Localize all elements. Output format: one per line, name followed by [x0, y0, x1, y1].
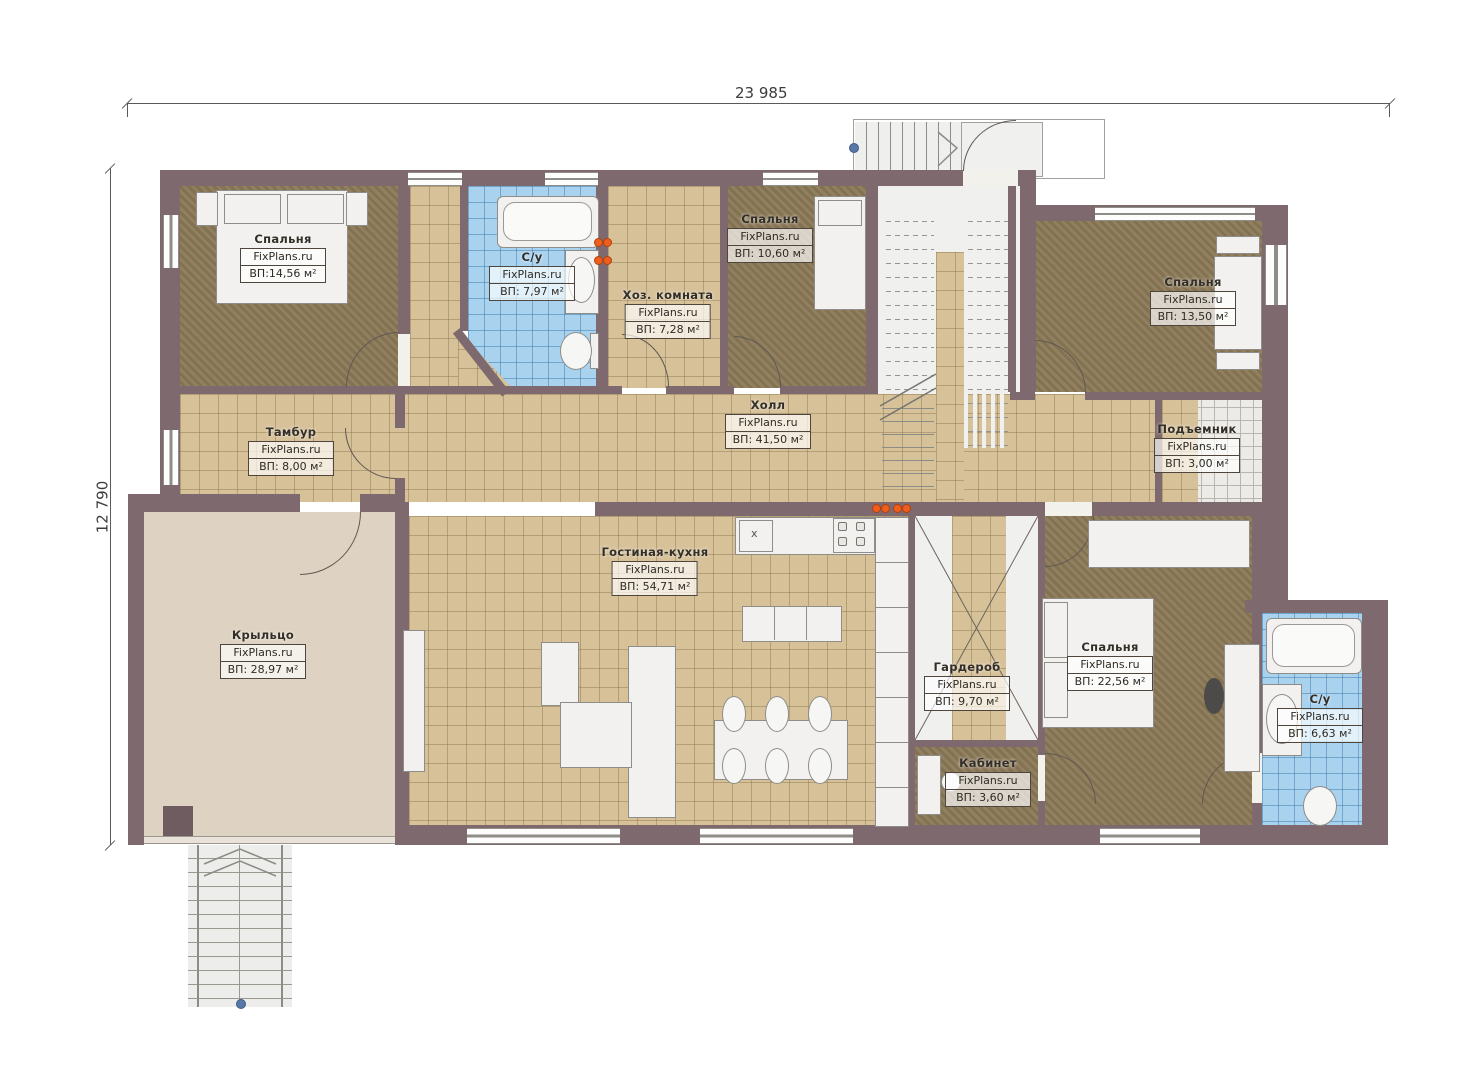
watermark: FixPlans.ru [241, 249, 325, 266]
sofa-chaise [560, 702, 632, 768]
room-label-vestibule: Тамбур FixPlans.ru ВП: 8,00 м² [248, 425, 334, 476]
toilet-1-bowl [560, 332, 592, 370]
toilet-2-bowl [1303, 786, 1337, 826]
dining-chair [722, 696, 746, 732]
railing-post-marker [849, 143, 859, 153]
island-divider [774, 606, 775, 640]
nightstand [1216, 236, 1260, 254]
pillow [1044, 662, 1068, 718]
room-label-wardrobe: Гардероб FixPlans.ru ВП: 9,70 м² [924, 660, 1010, 711]
kitchen-counter-right [875, 517, 909, 827]
watermark: FixPlans.ru [1151, 292, 1235, 309]
dresser [1224, 644, 1260, 772]
nightstand [1216, 352, 1260, 370]
room-label-porch: Крыльцо FixPlans.ru ВП: 28,97 м² [220, 628, 306, 679]
socket-marker [603, 256, 612, 265]
watermark: FixPlans.ru [728, 229, 812, 246]
watermark: FixPlans.ru [626, 305, 710, 322]
wardrobe-bedroom4 [1088, 520, 1250, 568]
dining-chair [722, 748, 746, 784]
dining-chair [808, 696, 832, 732]
room-label-bedroom-3: Спальня FixPlans.ru ВП: 13,50 м² [1150, 275, 1236, 326]
pillow [224, 194, 281, 224]
sink-symbol: х [751, 527, 758, 540]
socket-marker [603, 238, 612, 247]
stove-burner [856, 522, 865, 531]
watermark: FixPlans.ru [726, 415, 810, 432]
stove-burner [856, 537, 865, 546]
tv-unit [403, 630, 425, 772]
room-label-bathroom-2: С/у FixPlans.ru ВП: 6,63 м² [1277, 692, 1363, 743]
socket-marker [902, 504, 911, 513]
room-label-office: Кабинет FixPlans.ru ВП: 3,60 м² [945, 756, 1031, 807]
room-label-bedroom-2: Спальня FixPlans.ru ВП: 10,60 м² [727, 212, 813, 263]
socket-marker [594, 256, 603, 265]
room-label-bedroom-4: Спальня FixPlans.ru ВП: 22,56 м² [1067, 640, 1153, 691]
watermark: FixPlans.ru [1155, 439, 1239, 456]
pillow [818, 200, 862, 226]
side-table [541, 642, 579, 706]
sofa-main [628, 646, 676, 818]
room-label-hall: Холл FixPlans.ru ВП: 41,50 м² [725, 398, 811, 449]
pillow [1044, 602, 1068, 658]
bathtub-1-basin [503, 202, 592, 241]
watermark: FixPlans.ru [1278, 709, 1362, 726]
watermark: FixPlans.ru [613, 562, 697, 579]
bathtub-2-basin [1272, 624, 1355, 667]
tv-screen [1204, 678, 1224, 714]
watermark: FixPlans.ru [249, 442, 333, 459]
nightstand [346, 192, 368, 226]
floor-plan: 23 985 12 790 [0, 0, 1474, 1080]
dining-chair [765, 696, 789, 732]
kitchen-island [742, 606, 842, 642]
watermark: FixPlans.ru [925, 677, 1009, 694]
room-label-bathroom-1: С/у FixPlans.ru ВП: 7,97 м² [489, 250, 575, 301]
pillow [287, 194, 344, 224]
socket-marker [881, 504, 890, 513]
room-label-living-kitchen: Гостиная-кухня FixPlans.ru ВП: 54,71 м² [602, 545, 709, 596]
dining-chair [808, 748, 832, 784]
room-label-lift: Подъемник FixPlans.ru ВП: 3,00 м² [1154, 422, 1240, 473]
socket-marker [893, 504, 902, 513]
nightstand [196, 192, 218, 226]
railing-post-marker [236, 999, 246, 1009]
room-label-bedroom-1: Спальня FixPlans.ru ВП:14,56 м² [240, 232, 326, 283]
office-desk [917, 755, 941, 815]
watermark: FixPlans.ru [490, 267, 574, 284]
watermark: FixPlans.ru [1068, 657, 1152, 674]
watermark: FixPlans.ru [221, 645, 305, 662]
stove-burner [838, 522, 847, 531]
room-label-utility: Хоз. комната FixPlans.ru ВП: 7,28 м² [623, 288, 714, 339]
socket-marker [594, 238, 603, 247]
watermark: FixPlans.ru [946, 773, 1030, 790]
dining-chair [765, 748, 789, 784]
island-divider [806, 606, 807, 640]
stair-cut-lines [880, 374, 936, 420]
socket-marker [872, 504, 881, 513]
stove-burner [838, 537, 847, 546]
